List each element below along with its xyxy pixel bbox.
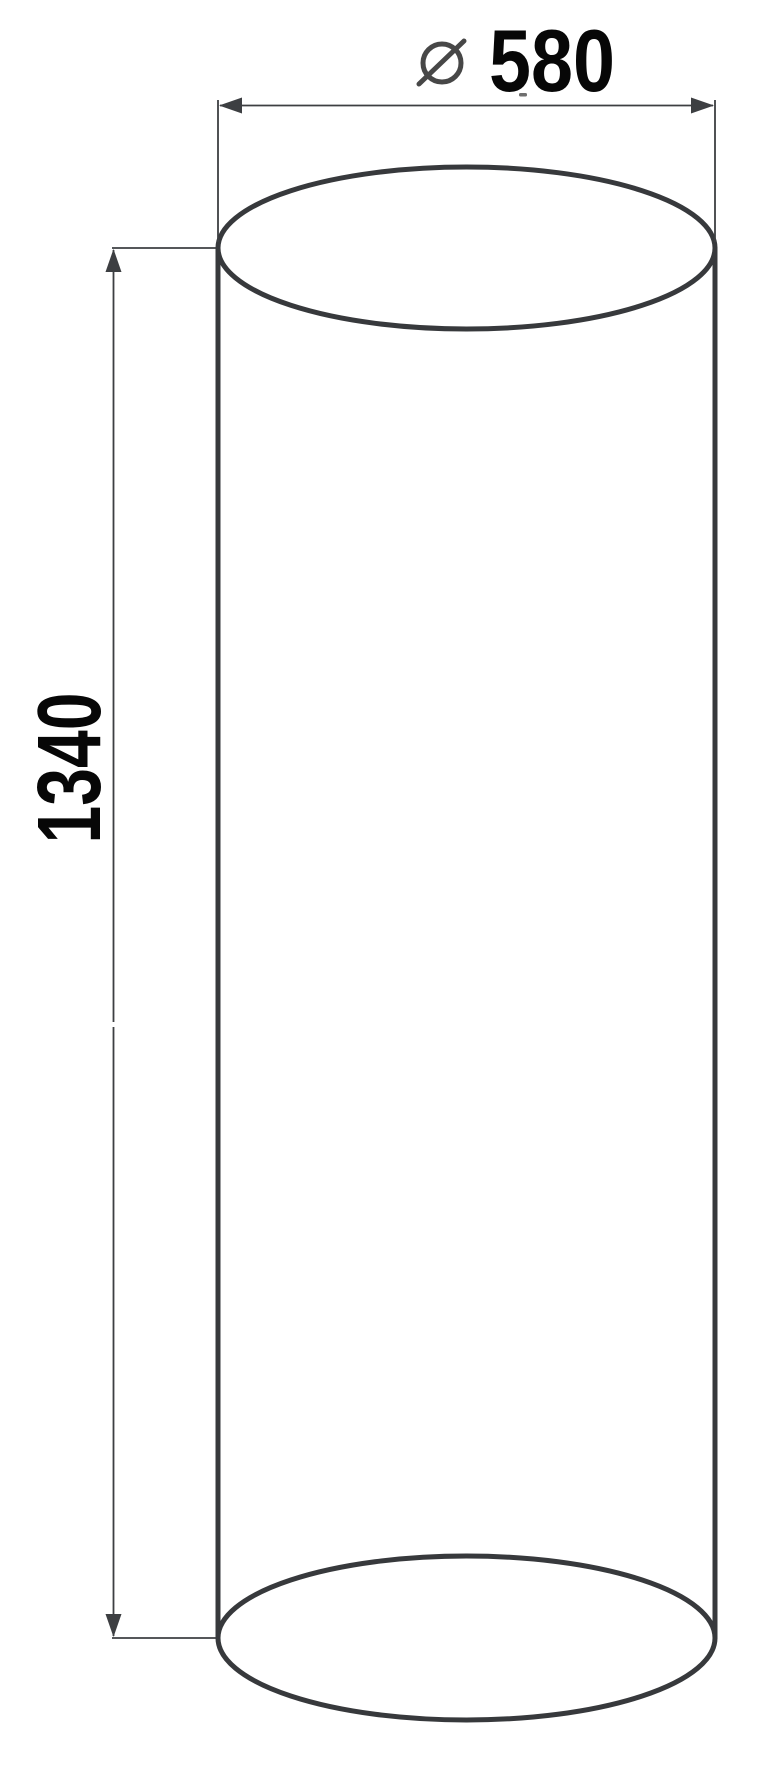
diameter-tick-mark <box>519 93 527 97</box>
diameter-arrow-left-icon <box>219 98 242 114</box>
height-dimension: 1340 <box>20 248 216 1638</box>
diameter-value-label: 580 <box>489 11 615 110</box>
diameter-dimension: 580 <box>218 11 715 242</box>
diameter-symbol-icon <box>419 41 464 84</box>
cylinder-top-ellipse <box>218 167 715 329</box>
cylinder-bottom-ellipse <box>218 1556 715 1720</box>
height-value-label: 1340 <box>20 693 120 844</box>
cylinder-drawing-canvas: 580 1340 <box>0 0 773 1788</box>
cylinder-body <box>218 167 715 1720</box>
height-arrow-up-icon <box>106 249 122 272</box>
technical-drawing: 580 1340 <box>0 0 773 1788</box>
diameter-arrow-right-icon <box>691 98 714 114</box>
height-arrow-down-icon <box>106 1614 122 1637</box>
